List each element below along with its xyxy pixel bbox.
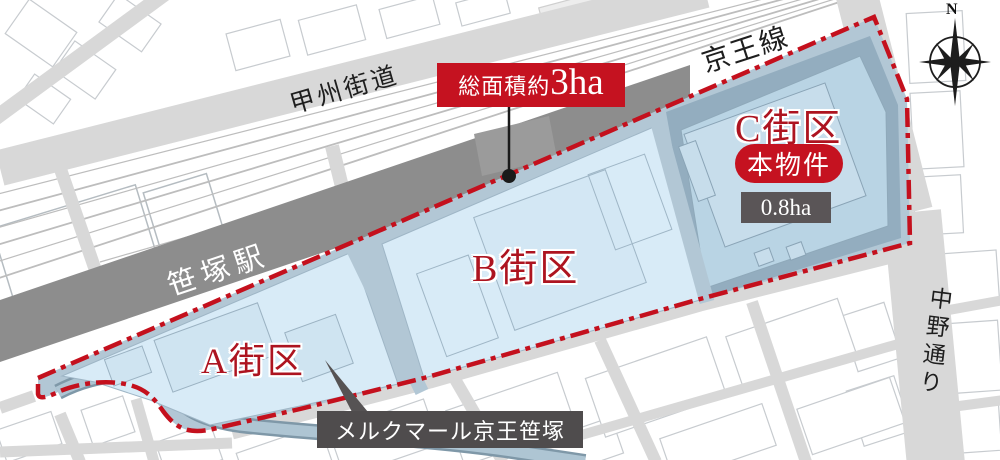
- block-area-badge: 0.8ha: [741, 192, 831, 223]
- property-badge: 本物件: [735, 144, 843, 183]
- district-label-b: B街区: [472, 237, 579, 292]
- boundary-dot-marker: [502, 169, 516, 183]
- total-area-prefix: 総面積約: [458, 69, 550, 101]
- total-area-badge: 総面積約 3ha: [437, 63, 625, 107]
- site-map: 甲州街道 京王線 笹塚駅 中野通り A街区 B街区 C街区 総面積約 3ha 本…: [0, 0, 1000, 460]
- district-label-a: A街区: [201, 332, 305, 384]
- building-callout-badge: メルクマール京王笹塚: [317, 411, 583, 448]
- compass-north-label: N: [946, 1, 958, 19]
- total-area-value: 3ha: [550, 63, 603, 103]
